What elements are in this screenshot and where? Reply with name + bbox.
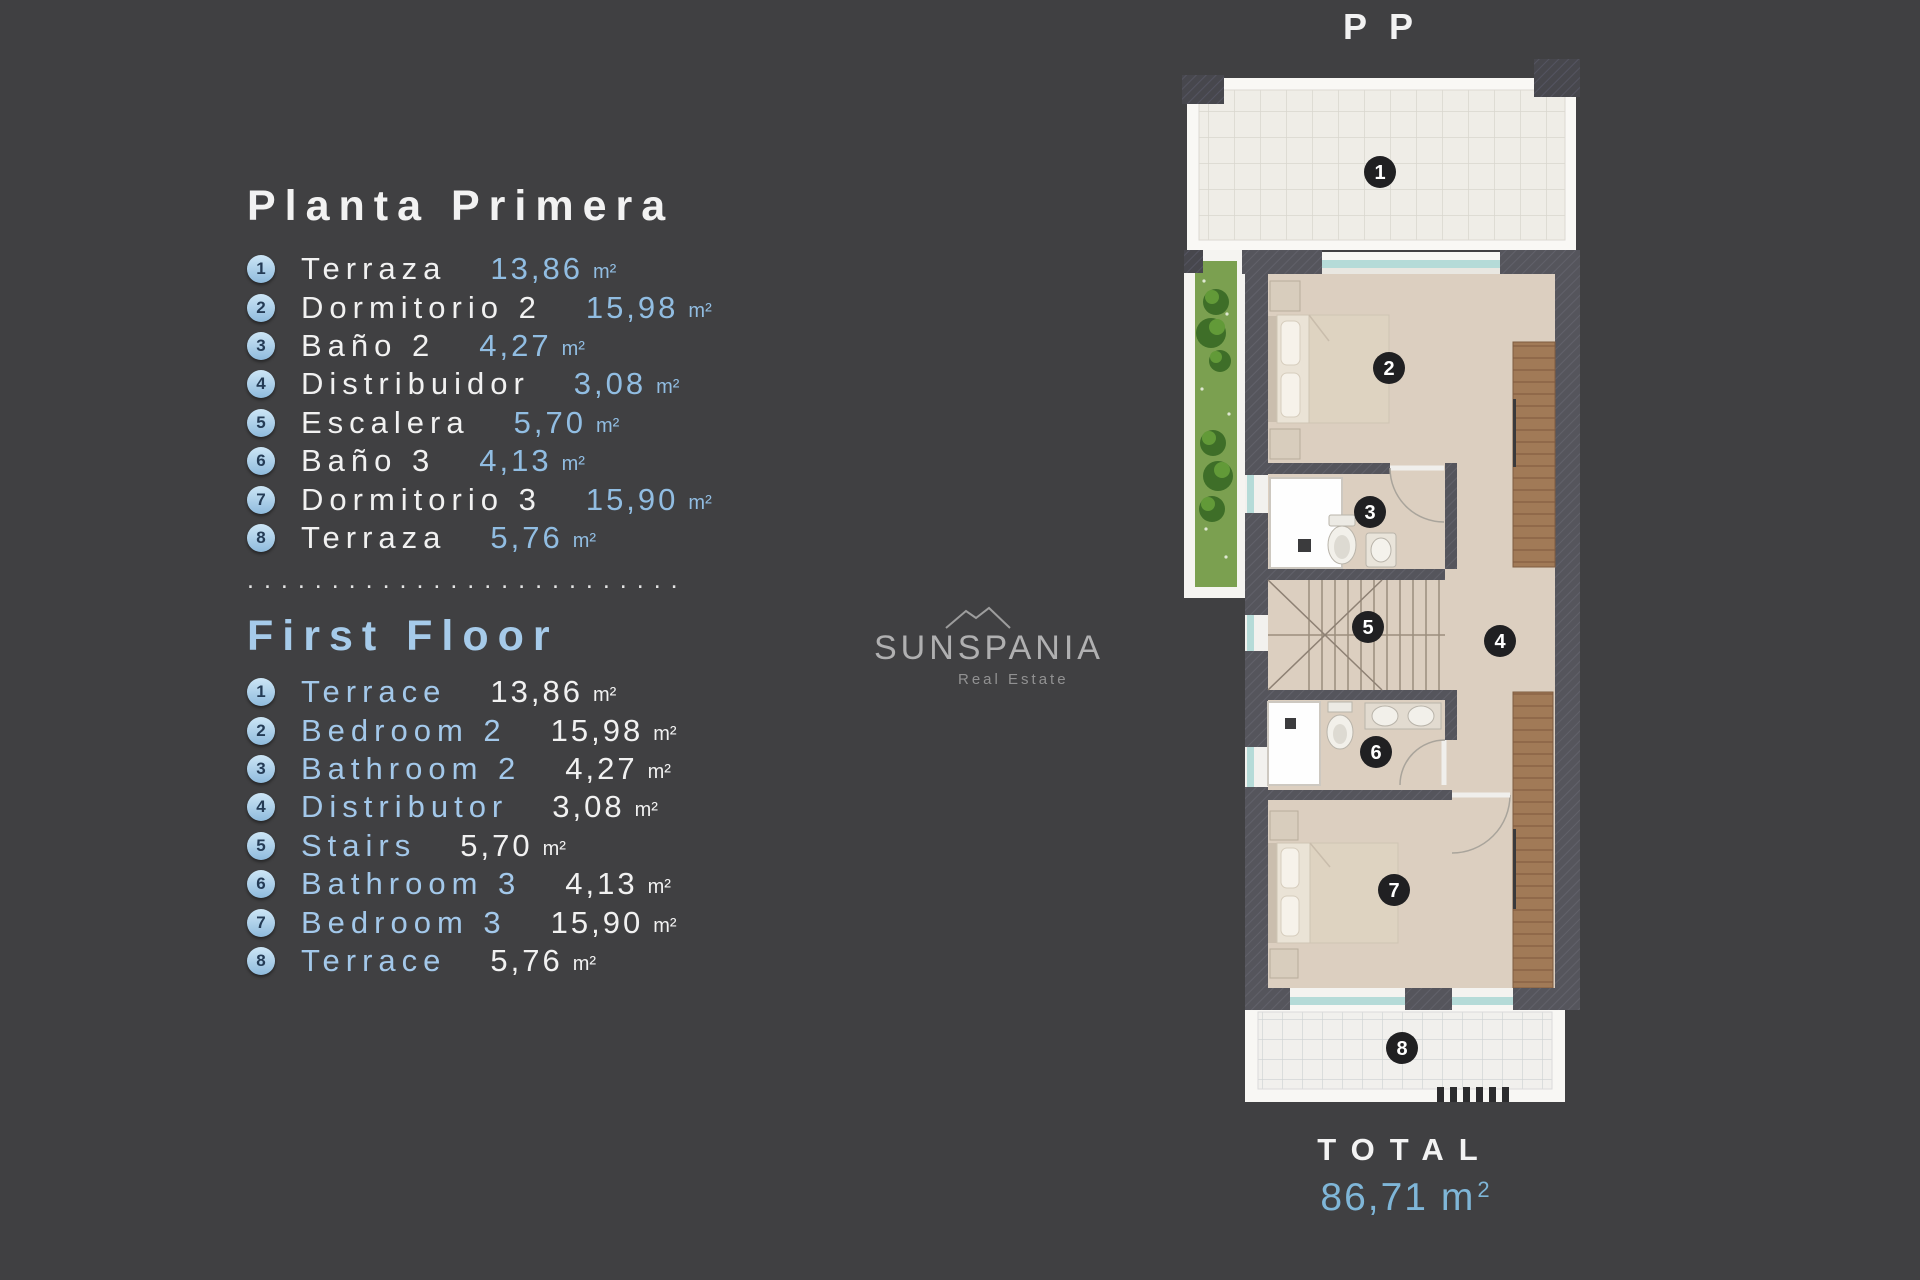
planter-area xyxy=(1184,250,1245,598)
room-area-value: 4,27 xyxy=(565,751,637,787)
room-name: Distributor xyxy=(301,789,508,825)
room-number-badge: 1 xyxy=(247,678,275,706)
room-number-badge: 1 xyxy=(247,255,275,283)
room-area-unit: m² xyxy=(688,492,711,515)
room-name: Bathroom 2 xyxy=(301,751,521,787)
room-area-unit: m² xyxy=(562,338,585,361)
room-row: 3 Bathroom 2 4,27 m² xyxy=(247,750,677,788)
room-area-unit: m² xyxy=(593,261,616,284)
section-separator: .......................... xyxy=(247,566,688,595)
room-number-badge: 7 xyxy=(247,486,275,514)
room-area-unit: m² xyxy=(596,415,619,438)
room-row: 5 Stairs 5,70 m² xyxy=(247,827,677,865)
plan-room-badge-8: 8 xyxy=(1396,1038,1407,1060)
room-number-badge: 5 xyxy=(247,832,275,860)
plan-room-badge-2: 2 xyxy=(1383,358,1394,380)
floor-plan-drawing: 1 2 3 4 5 6 7 8 xyxy=(1182,59,1582,1109)
room-area-unit: m² xyxy=(562,453,585,476)
total-value: 86,71 m2 xyxy=(1290,1176,1520,1220)
plan-room-badge-5: 5 xyxy=(1362,617,1373,639)
room-number-badge: 5 xyxy=(247,409,275,437)
room-row: 1 Terrace 13,86 m² xyxy=(247,673,677,711)
room-area-value: 4,13 xyxy=(479,443,551,479)
room-number-badge: 8 xyxy=(247,947,275,975)
plan-room-badge-6: 6 xyxy=(1370,742,1381,764)
room-name: Bedroom 3 xyxy=(301,905,507,941)
plan-room-badge-3: 3 xyxy=(1364,502,1375,524)
room-row: 3 Baño 2 4,27 m² xyxy=(247,327,712,365)
plan-room-badge-1: 1 xyxy=(1374,162,1385,184)
room-name: Bedroom 2 xyxy=(301,713,507,749)
room-name: Bathroom 3 xyxy=(301,866,521,902)
room-row: 1 Terraza 13,86 m² xyxy=(247,250,712,288)
room-area-value: 15,98 xyxy=(551,713,644,749)
room-name: Dormitorio 2 xyxy=(301,290,542,326)
room-number-badge: 3 xyxy=(247,755,275,783)
room-number-badge: 2 xyxy=(247,294,275,322)
room-area-value: 3,08 xyxy=(552,789,624,825)
english-room-list: 1 Terrace 13,86 m² 2 Bedroom 2 15,98 m² … xyxy=(247,673,677,980)
room-row: 8 Terrace 5,76 m² xyxy=(247,942,677,980)
room-area-unit: m² xyxy=(635,799,658,822)
room-name: Dormitorio 3 xyxy=(301,482,542,518)
room-name: Distribuidor xyxy=(301,366,530,402)
room-number-badge: 3 xyxy=(247,332,275,360)
room-row: 2 Dormitorio 2 15,98 m² xyxy=(247,288,712,326)
room-number-badge: 6 xyxy=(247,870,275,898)
watermark-tagline: Real Estate xyxy=(958,671,1069,688)
room-name: Baño 3 xyxy=(301,443,435,479)
room-name: Escalera xyxy=(301,405,470,441)
room-area-unit: m² xyxy=(573,953,596,976)
room-area-unit: m² xyxy=(648,876,671,899)
room-area-unit: m² xyxy=(648,761,671,784)
room-area-value: 13,86 xyxy=(490,251,583,287)
room-number-badge: 6 xyxy=(247,447,275,475)
room-row: 4 Distribuidor 3,08 m² xyxy=(247,365,712,403)
room-area-unit: m² xyxy=(593,684,616,707)
total-label: TOTAL xyxy=(1290,1132,1520,1168)
floor-plan-title: PP xyxy=(1343,6,1435,48)
room-area-unit: m² xyxy=(656,376,679,399)
spanish-section-heading: Planta Primera xyxy=(247,182,674,231)
room-row: 5 Escalera 5,70 m² xyxy=(247,404,712,442)
total-value-number: 86,71 m xyxy=(1320,1176,1475,1219)
room-row: 6 Baño 3 4,13 m² xyxy=(247,442,712,480)
room-number-badge: 8 xyxy=(247,524,275,552)
room-name: Terraza xyxy=(301,251,446,287)
room-name: Terraza xyxy=(301,520,446,556)
room-area-value: 5,76 xyxy=(490,943,562,979)
room-row: 4 Distributor 3,08 m² xyxy=(247,788,677,826)
room-area-unit: m² xyxy=(653,723,676,746)
room-number-badge: 4 xyxy=(247,370,275,398)
room-area-value: 4,13 xyxy=(565,866,637,902)
room-area-value: 13,86 xyxy=(490,674,583,710)
room-area-unit: m² xyxy=(543,838,566,861)
floor-plan-page: Planta Primera 1 Terraza 13,86 m² 2 Dorm… xyxy=(0,0,1920,1280)
room-name: Terrace xyxy=(301,943,446,979)
room-area-value: 15,90 xyxy=(551,905,644,941)
total-value-superscript: 2 xyxy=(1477,1177,1491,1202)
watermark-brand-name: SUNSPANIA xyxy=(874,629,1104,668)
room-area-value: 15,98 xyxy=(586,290,679,326)
room-name: Baño 2 xyxy=(301,328,435,364)
total-area-block: TOTAL 86,71 m2 xyxy=(1290,1132,1520,1220)
room-row: 6 Bathroom 3 4,13 m² xyxy=(247,865,677,903)
english-section-heading: First Floor xyxy=(247,612,559,661)
room-name: Stairs xyxy=(301,828,416,864)
room-row: 2 Bedroom 2 15,98 m² xyxy=(247,711,677,749)
room-row: 7 Dormitorio 3 15,90 m² xyxy=(247,480,712,518)
room-number-badge: 2 xyxy=(247,717,275,745)
room-area-value: 5,76 xyxy=(490,520,562,556)
terrace-1-area xyxy=(1182,59,1580,250)
room-area-value: 5,70 xyxy=(514,405,586,441)
room-number-badge: 7 xyxy=(247,909,275,937)
spanish-room-list: 1 Terraza 13,86 m² 2 Dormitorio 2 15,98 … xyxy=(247,250,712,557)
room-area-value: 5,70 xyxy=(460,828,532,864)
room-row: 8 Terraza 5,76 m² xyxy=(247,519,712,557)
room-name: Terrace xyxy=(301,674,446,710)
room-area-unit: m² xyxy=(573,530,596,553)
watermark-roof-icon xyxy=(944,606,1014,630)
room-area-value: 3,08 xyxy=(574,366,646,402)
plan-room-badge-4: 4 xyxy=(1494,631,1506,653)
plan-room-badge-7: 7 xyxy=(1388,880,1399,902)
room-area-unit: m² xyxy=(688,300,711,323)
room-area-unit: m² xyxy=(653,915,676,938)
room-row: 7 Bedroom 3 15,90 m² xyxy=(247,903,677,941)
room-area-value: 15,90 xyxy=(586,482,679,518)
room-area-value: 4,27 xyxy=(479,328,551,364)
room-number-badge: 4 xyxy=(247,793,275,821)
